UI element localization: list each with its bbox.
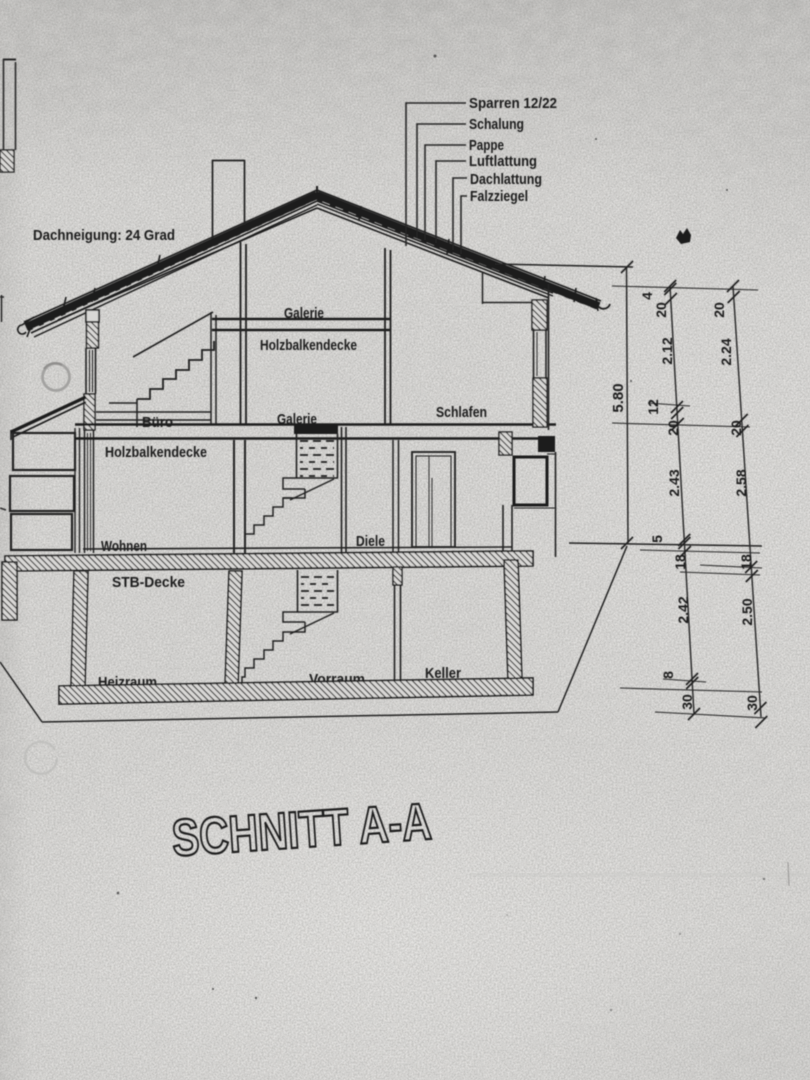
svg-text:20: 20 [728,420,744,436]
svg-text:Pappe: Pappe [469,138,504,154]
svg-text:4: 4 [639,292,655,300]
svg-text:Wohnen: Wohnen [101,538,147,555]
svg-text:2.42: 2.42 [675,596,691,623]
svg-text:Falzziegel: Falzziegel [470,189,528,205]
svg-text:Galerie: Galerie [284,305,324,322]
svg-text:Holzbalkendecke: Holzbalkendecke [260,337,357,354]
svg-text:Luftlattung: Luftlattung [469,154,537,170]
svg-text:8: 8 [660,671,676,679]
svg-text:20: 20 [653,302,669,318]
svg-text:5: 5 [649,535,665,543]
svg-text:Büro: Büro [142,414,173,431]
svg-text:Galerie: Galerie [277,411,317,428]
svg-text:Schlafen: Schlafen [436,404,487,421]
svg-text:2.24: 2.24 [718,338,734,365]
svg-text:5.80: 5.80 [610,383,627,412]
svg-text:Dachlattung: Dachlattung [470,172,542,188]
svg-text:30: 30 [679,694,695,710]
svg-text:2.50: 2.50 [739,598,755,625]
svg-text:2.58: 2.58 [733,469,749,496]
svg-text:Sparren 12/22: Sparren 12/22 [469,96,557,112]
svg-text:2.43: 2.43 [666,469,682,496]
svg-text:Holzbalkendecke: Holzbalkendecke [105,444,207,461]
svg-text:20: 20 [665,420,681,436]
svg-text:30: 30 [744,695,760,711]
svg-text:18: 18 [672,554,688,570]
svg-text:20: 20 [711,302,727,318]
svg-text:12: 12 [645,399,661,415]
svg-text:Dachneigung: 24 Grad: Dachneigung: 24 Grad [33,227,175,244]
svg-text:Schalung: Schalung [469,117,524,133]
svg-text:STB-Decke: STB-Decke [112,574,185,591]
svg-text:18: 18 [738,554,754,570]
svg-text:2.12: 2.12 [659,337,675,364]
